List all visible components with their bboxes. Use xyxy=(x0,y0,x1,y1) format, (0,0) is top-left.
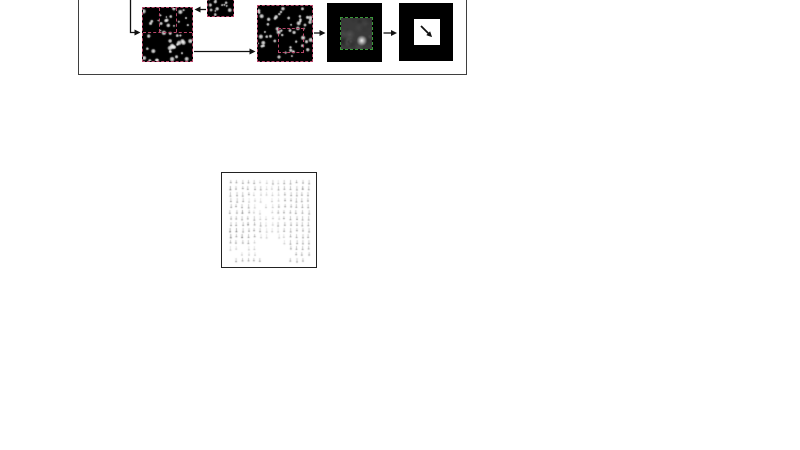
displacement-result-box xyxy=(399,3,453,61)
search-window-outline xyxy=(278,28,304,53)
vector-field-canvas xyxy=(222,173,316,267)
arrow-into-image-a xyxy=(131,0,136,33)
displacement-vector-cell xyxy=(414,19,440,45)
particle-image-a xyxy=(142,7,193,62)
template-window-canvas xyxy=(208,0,233,16)
interrogation-grid-vline-2 xyxy=(176,8,177,32)
correlation-map xyxy=(340,17,373,50)
vector-field-plot xyxy=(221,172,317,268)
particle-image-a-canvas xyxy=(143,8,192,61)
interrogation-grid-hline xyxy=(143,32,192,33)
displacement-vector-arrow xyxy=(414,19,440,45)
template-window xyxy=(207,0,234,17)
interrogation-grid-vline-1 xyxy=(159,8,160,32)
correlation-box xyxy=(327,3,382,62)
particle-image-b xyxy=(257,5,313,62)
figure-canvas xyxy=(0,0,800,450)
correlation-map-canvas xyxy=(341,18,372,49)
